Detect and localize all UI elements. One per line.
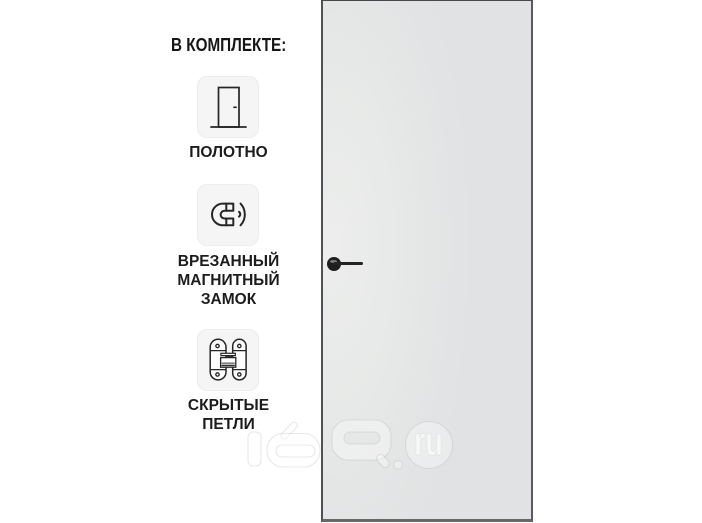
svg-text:ru: ru: [414, 420, 443, 464]
